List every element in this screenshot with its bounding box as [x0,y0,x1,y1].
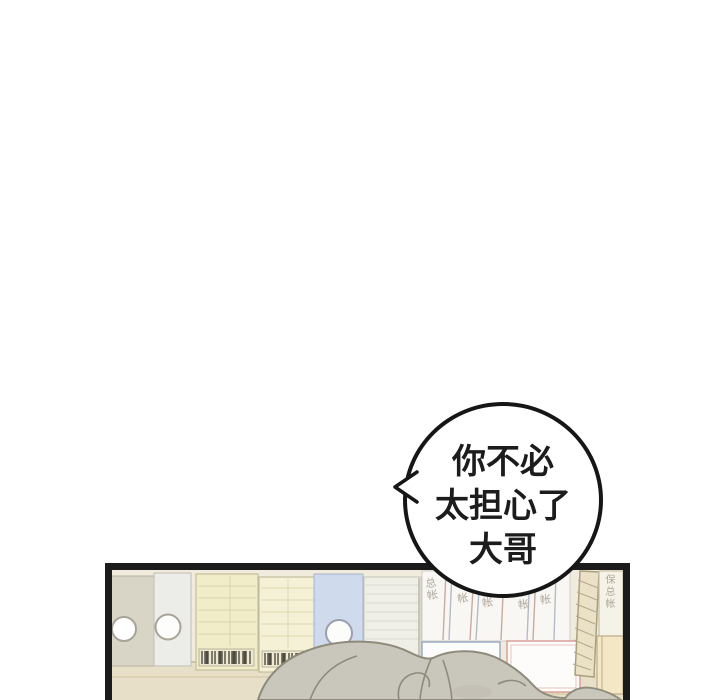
binder-ring-hole [156,615,181,640]
bubble-text-line: 太担心了 [435,484,571,528]
ledger-stack-1 [196,574,258,670]
ring-binder-1 [112,576,155,666]
ring-binder-2 [154,573,191,666]
spine-label: 帐 [517,598,529,611]
spine-label: 保总帐 [603,574,613,610]
bubble-text-line: 大哥 [469,528,537,572]
spine-label: 帐 [481,596,493,609]
bubble-text-line: 你不必 [452,440,554,484]
speech-bubble-tail [391,464,419,506]
binder-ring-hole [112,617,136,641]
speech-bubble-text: 你不必 太担心了 大哥 [407,406,599,594]
comic-page: 总帐 帐 帐 帐 帐 保总帐 你不必 太担心了 大哥 [0,0,720,700]
spine-label: 帐 [539,593,551,606]
tan-box-right [597,636,623,694]
speech-bubble: 你不必 太担心了 大哥 [403,402,603,598]
